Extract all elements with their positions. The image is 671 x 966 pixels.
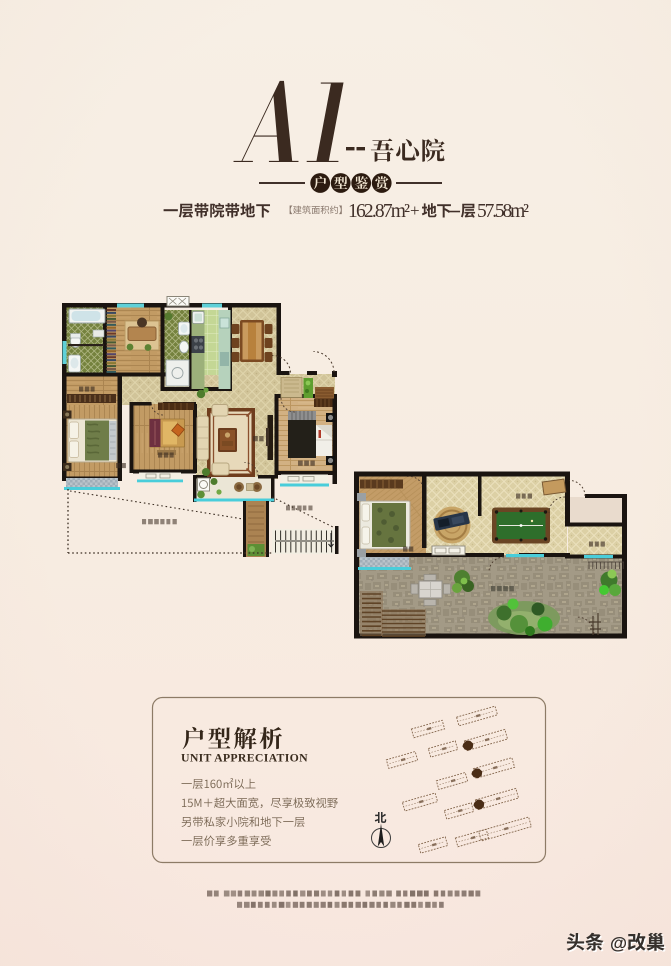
- svg-text:@: @: [610, 933, 627, 953]
- svg-text:162.87m²: 162.87m²: [348, 201, 410, 222]
- svg-text:UNIT APPRECIATION: UNIT APPRECIATION: [181, 751, 308, 765]
- svg-text:57.58m²: 57.58m²: [477, 201, 529, 222]
- svg-text:+: +: [410, 201, 420, 220]
